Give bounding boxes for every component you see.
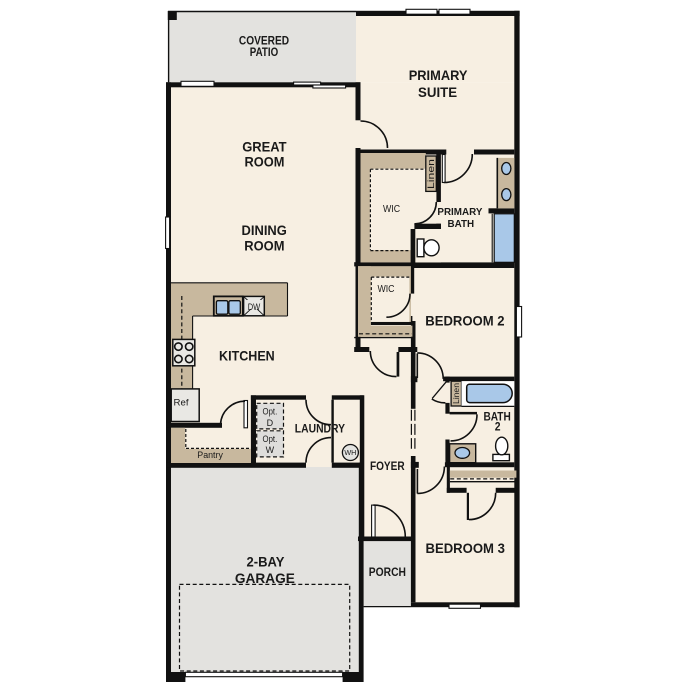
svg-text:PRIMARY: PRIMARY: [437, 207, 482, 218]
svg-text:PRIMARY: PRIMARY: [409, 67, 468, 83]
svg-text:Linen: Linen: [426, 159, 436, 189]
svg-text:ROOM: ROOM: [245, 154, 285, 170]
svg-text:WIC: WIC: [383, 204, 400, 215]
svg-text:BEDROOM 3: BEDROOM 3: [426, 540, 506, 556]
svg-text:SUITE: SUITE: [418, 84, 457, 100]
svg-text:PATIO: PATIO: [250, 47, 278, 59]
svg-text:2: 2: [495, 420, 501, 434]
svg-text:WH: WH: [344, 448, 356, 457]
svg-text:GREAT: GREAT: [242, 138, 287, 154]
svg-text:ROOM: ROOM: [244, 238, 284, 254]
svg-text:KITCHEN: KITCHEN: [219, 347, 275, 363]
svg-text:WIC: WIC: [377, 284, 394, 295]
svg-text:Ref: Ref: [174, 398, 190, 408]
svg-text:2-BAY: 2-BAY: [247, 553, 286, 569]
svg-text:GARAGE: GARAGE: [235, 570, 295, 586]
svg-text:Linen: Linen: [451, 383, 461, 404]
svg-text:LAUNDRY: LAUNDRY: [295, 421, 345, 435]
svg-text:DINING: DINING: [242, 222, 287, 238]
svg-text:COVERED: COVERED: [239, 35, 289, 47]
svg-text:Pantry: Pantry: [197, 450, 223, 460]
svg-text:Opt.: Opt.: [263, 407, 278, 417]
svg-text:DW: DW: [248, 302, 261, 312]
svg-text:Opt.: Opt.: [263, 434, 278, 444]
svg-text:W: W: [266, 445, 275, 455]
svg-text:BEDROOM 2: BEDROOM 2: [425, 313, 504, 329]
svg-text:FOYER: FOYER: [370, 459, 405, 473]
svg-text:D: D: [267, 418, 274, 428]
svg-text:PORCH: PORCH: [369, 565, 406, 579]
svg-text:BATH: BATH: [448, 219, 475, 230]
